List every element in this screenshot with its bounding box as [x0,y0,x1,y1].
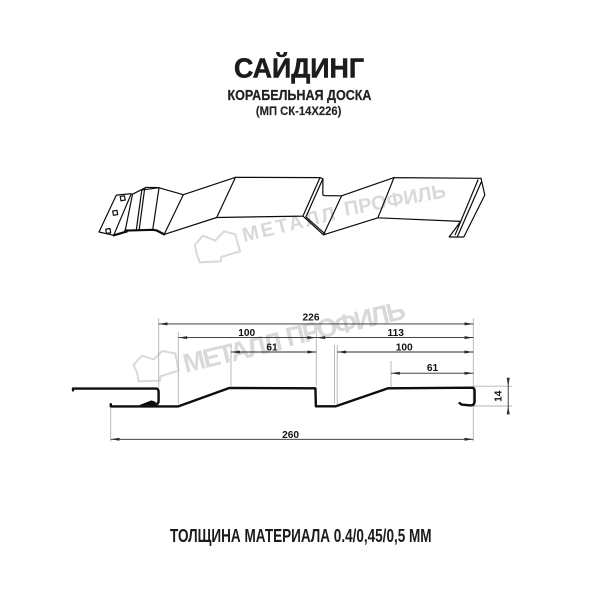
svg-text:61: 61 [266,342,278,353]
svg-text:226: 226 [303,312,320,323]
svg-text:61: 61 [427,363,439,374]
svg-text:260: 260 [282,430,299,441]
svg-text:100: 100 [238,328,255,339]
svg-text:ТОЛЩИНА МАТЕРИАЛА 0.4/0,45/0,5: ТОЛЩИНА МАТЕРИАЛА 0.4/0,45/0,5 ММ [170,525,432,546]
svg-text:КОРАБЕЛЬНАЯ ДОСКА: КОРАБЕЛЬНАЯ ДОСКА [228,88,373,104]
svg-text:САЙДИНГ: САЙДИНГ [234,53,364,84]
svg-text:14: 14 [494,390,505,402]
svg-text:(МП СК-14Х226): (МП СК-14Х226) [256,104,342,118]
svg-text:100: 100 [396,342,413,353]
svg-text:113: 113 [387,328,404,339]
